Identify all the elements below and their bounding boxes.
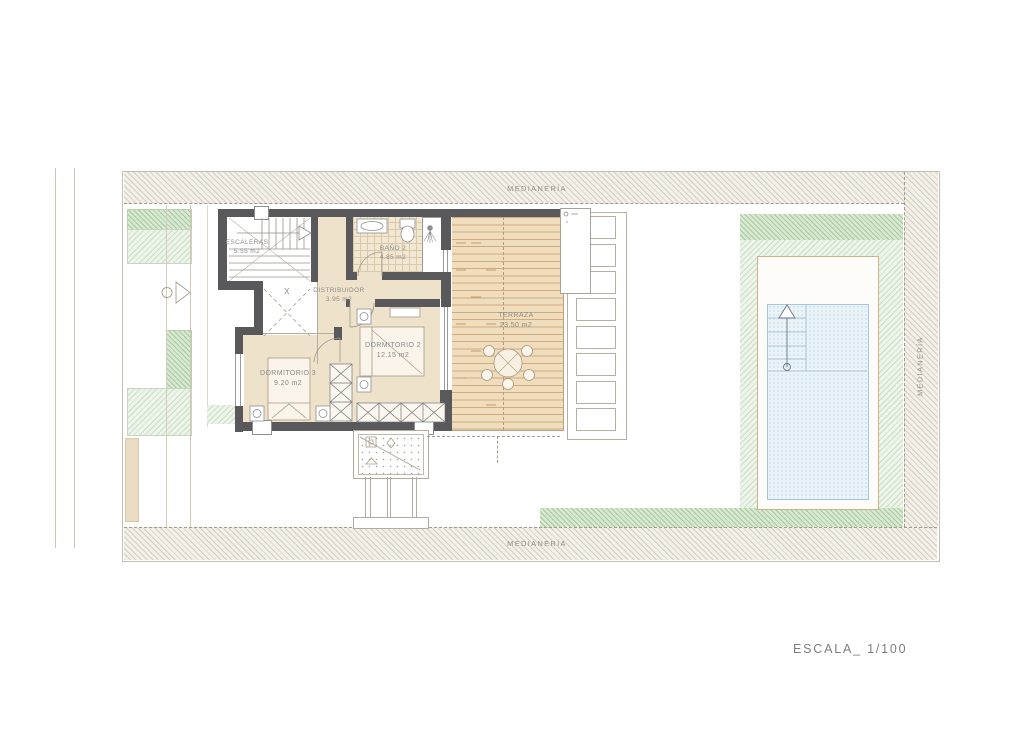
room-name: DORMITORIO 2 — [348, 341, 438, 351]
room-name: TERRAZA — [471, 311, 561, 321]
callout-glyphs — [564, 212, 578, 222]
room-label-distribuidor: DISTRIBUIDOR 3.95 m2 — [299, 286, 379, 305]
room-area: 23.50 m2 — [471, 321, 561, 331]
room-area: 9.20 m2 — [243, 379, 333, 389]
room-name: DORMITORIO 3 — [243, 369, 333, 379]
floor-plan-sheet: MEDIANERÍA MEDIANERÍA MEDIANERÍA — [0, 0, 1024, 732]
shower-head-icon — [428, 226, 433, 231]
room-area: 3.95 m2 — [299, 295, 379, 304]
wardrobe-bedroom3 — [330, 364, 352, 421]
room-area: 4.85 m2 — [358, 253, 428, 262]
room-name: DISTRIBUIDOR — [299, 286, 379, 295]
pool-arrow — [779, 305, 795, 371]
room-label-dormitorio3: DORMITORIO 3 9.20 m2 — [243, 369, 333, 389]
room-label-bano2: BAÑO 2 4.85 m2 — [358, 244, 428, 263]
scale-note: ESCALA_ 1/100 — [793, 642, 907, 656]
stair-void-marker: X — [279, 286, 295, 298]
room-label-terraza: TERRAZA 23.50 m2 — [471, 311, 561, 331]
linework-overlay — [0, 0, 1024, 732]
wardrobe-bedroom2 — [357, 403, 445, 422]
room-label-dormitorio2: DORMITORIO 2 12.15 m2 — [348, 341, 438, 361]
room-area: 12.15 m2 — [348, 351, 438, 361]
room-name: BAÑO 2 — [358, 244, 428, 253]
room-name: ESCALERAS — [212, 238, 282, 247]
room-area: 5.55 m2 — [212, 247, 282, 256]
gate-symbol — [162, 282, 190, 303]
porch-ornaments — [360, 437, 420, 470]
bathroom-fixtures — [357, 219, 436, 243]
room-label-escaleras: ESCALERAS 5.55 m2 — [212, 238, 282, 257]
terrace-table — [482, 346, 535, 390]
bed-bedroom3 — [250, 358, 330, 421]
